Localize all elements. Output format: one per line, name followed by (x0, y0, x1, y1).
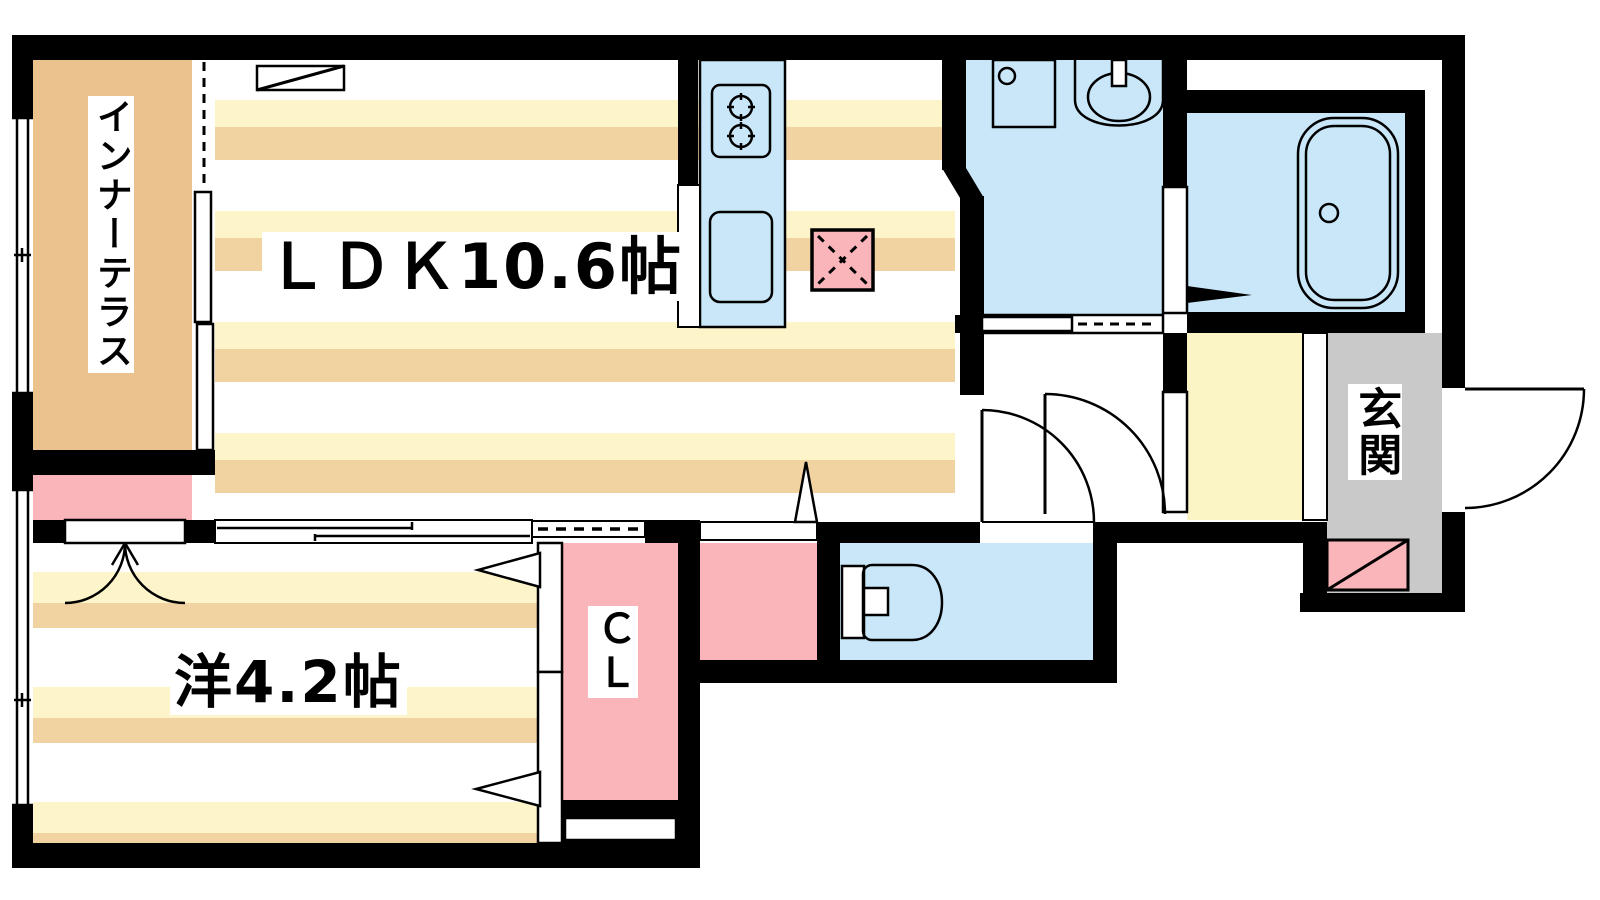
bedroom-room-label: 洋4.2帖 (170, 650, 407, 715)
wall-stub-left2 (185, 520, 215, 543)
wall-washroom-bath-lower (1163, 333, 1187, 392)
wall-mid-a (817, 522, 980, 543)
washroom-floor (966, 58, 1163, 315)
terrace-counter (33, 475, 192, 520)
wall-bath-top (1187, 90, 1425, 113)
entrance-door (1442, 388, 1584, 512)
toilet-floor (840, 543, 1093, 660)
hall-door (1045, 392, 1187, 514)
bathroom-floor (1187, 113, 1405, 312)
wall-under-closet (538, 800, 700, 868)
terrace-divider (192, 60, 215, 450)
wall-storage-left (680, 522, 700, 683)
toilet-door-opening (980, 522, 1093, 543)
wall-toilet-right (1093, 543, 1117, 683)
washroom-sliding-door (980, 315, 1163, 333)
wall-storage-toilet (817, 543, 840, 660)
wall-toilet-bottom (680, 660, 1117, 683)
terrace-room-label: インナーテラス (88, 96, 134, 373)
wall-terrace-bottom (12, 450, 215, 475)
wall-mid-b (1093, 522, 1327, 543)
wall-stub-left1 (33, 520, 65, 543)
storage-door-lintel (700, 522, 817, 540)
hall-floor (1187, 333, 1303, 520)
wall-top (12, 35, 1465, 60)
wall-kitchen-stub (678, 58, 698, 185)
toilet-door (982, 410, 1094, 522)
bedroom-sliding-door (215, 520, 645, 543)
entrance-step (1303, 333, 1327, 520)
wall-bath-bottom (1187, 312, 1425, 333)
wall-ldk-washroom-upper (942, 58, 966, 170)
floorplan: ＬＤＫ10.6帖 洋4.2帖 インナーテラス ＣＬ 玄関 (0, 0, 1600, 900)
wall-washroom-bath-upper (1163, 58, 1187, 187)
wall-entrance-bottom (1300, 593, 1465, 612)
closet-room-label: ＣＬ (588, 606, 638, 698)
wall-exterior-right-upper (1442, 35, 1465, 388)
storage-room-floor (700, 543, 817, 660)
wall-bath-right (1405, 90, 1425, 333)
ldk-room-label: ＬＤＫ10.6帖 (262, 232, 687, 301)
wall-washroom-bottom-stub (955, 315, 980, 333)
wall-ldk-washroom-lower (960, 196, 984, 395)
entrance-room-label: 玄関 (1348, 384, 1402, 480)
